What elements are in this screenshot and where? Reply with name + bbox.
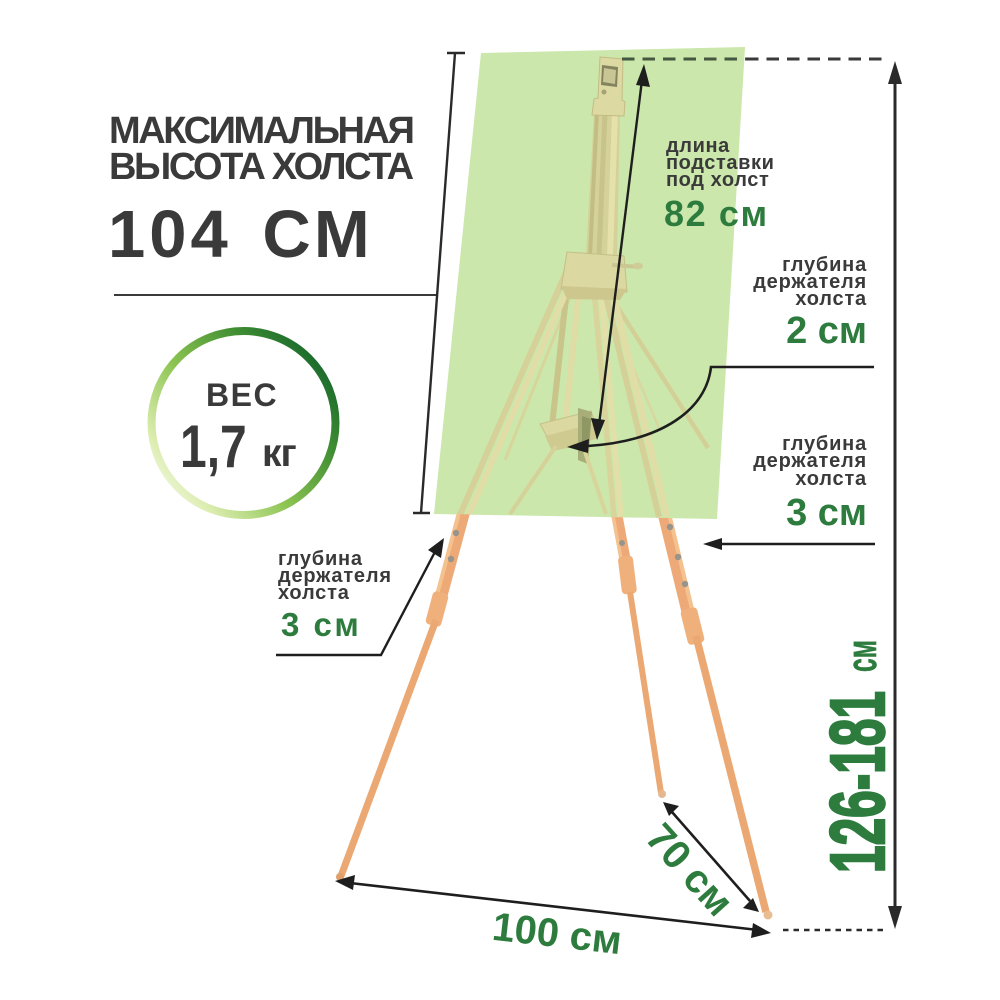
svg-text:см: см <box>838 640 885 672</box>
svg-text:126-181: 126-181 <box>815 691 901 873</box>
